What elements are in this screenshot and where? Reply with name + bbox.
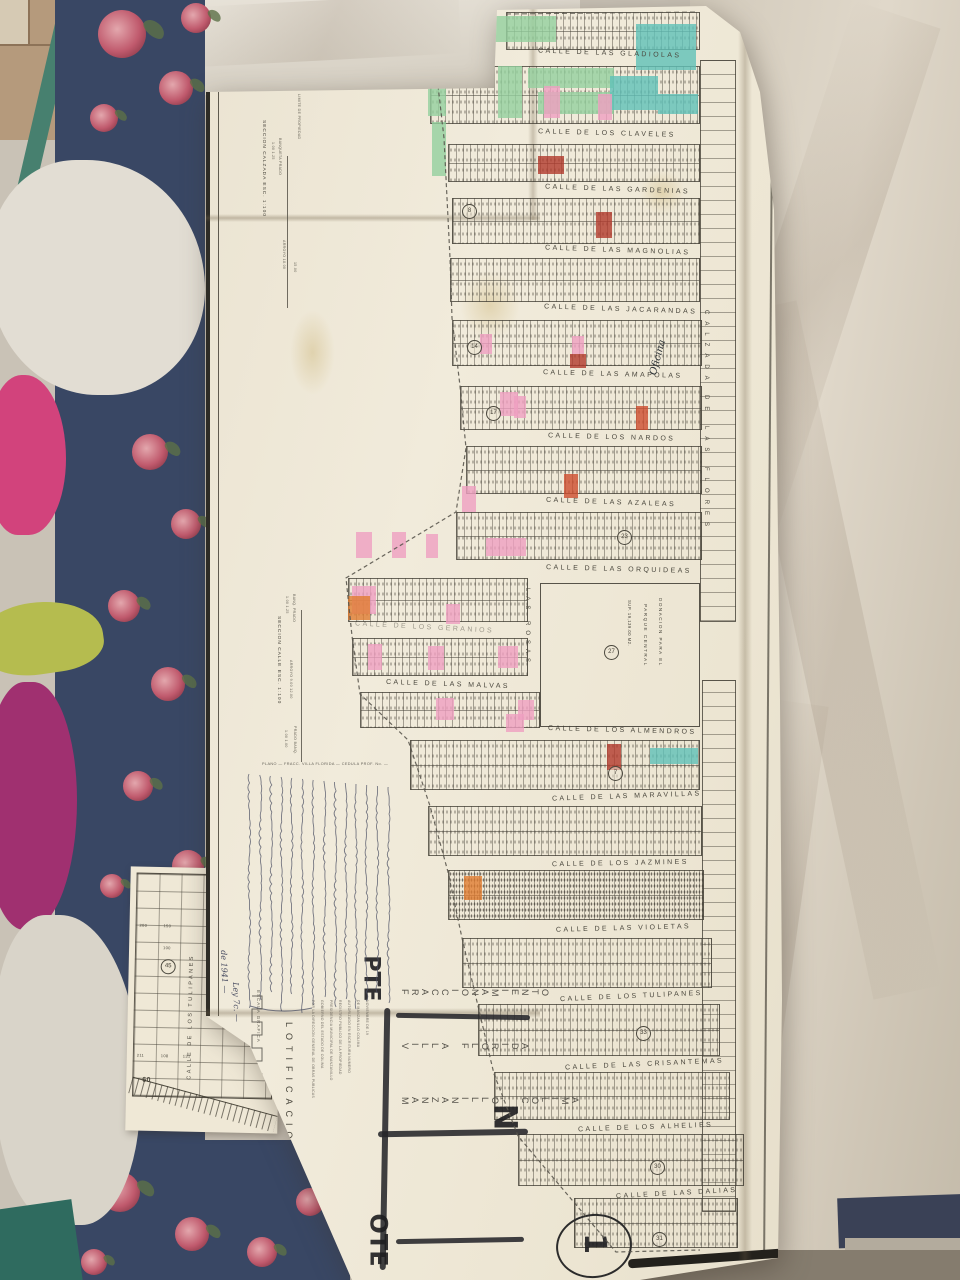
colored-lot (392, 532, 406, 558)
handwritten-ley-fragment: Ley 7c. — (231, 982, 241, 1022)
compass-north-label: N (486, 1104, 524, 1131)
certificate-small-print: DE MANZANILLO COLIMA (356, 1000, 360, 1047)
title-letter: I (500, 1043, 510, 1053)
escala-grafica-label: ESCALA GRAFICA (256, 990, 261, 1066)
photo-of-subdivision-map: { "scene": { "floor_color": "#b59a7c", "… (0, 0, 960, 1280)
colored-lot (464, 876, 482, 900)
paper-stain (290, 310, 335, 395)
svg-path (280, 777, 283, 1011)
block-number: 31 (652, 1232, 667, 1247)
colored-lot (636, 24, 696, 70)
colored-lot (570, 354, 586, 368)
title-letter: N (520, 989, 530, 999)
certificate-small-print: POR LA DIRECCION GENERAL DE OBRAS PUBLIC… (311, 1000, 315, 1098)
section-diagram-label: ARROYO 18.00 (282, 240, 286, 269)
title-letter: C (440, 989, 450, 999)
colored-lot (368, 644, 382, 670)
title-letter: L (470, 1097, 480, 1107)
title-letter: N (450, 1097, 460, 1107)
title-letter: I (500, 989, 510, 999)
colored-lot (492, 16, 556, 42)
printed-registry-line: PLANO — FRACC. VILLA FLORIDA — CEDULA PR… (262, 762, 388, 766)
colored-lot (446, 604, 460, 624)
street-label: CALLE DE LOS ALHELIES (578, 1122, 713, 1134)
title-letter: R (410, 989, 420, 999)
street-label: CALLE DE LOS GERANIOS (355, 620, 494, 634)
svg-path (334, 782, 337, 1007)
title-letter: N (420, 1097, 430, 1107)
street-label: CALLE DE LAS MARAVILLAS (552, 790, 702, 802)
title-letter: C (430, 989, 440, 999)
title-letter: A (440, 1097, 450, 1107)
colored-lot (426, 534, 438, 558)
block-number: 7 (608, 766, 623, 781)
street-label: CALLE DE LOS NARDOS (548, 432, 675, 442)
section-diagram-label: LIMITE DE PROPIEDAD (297, 94, 301, 139)
colored-lot (434, 16, 490, 42)
title-letter: L (420, 1043, 430, 1053)
title-letter: T (530, 989, 540, 999)
sheet-border-left (206, 92, 210, 1016)
fold-crease-vertical (738, 0, 752, 1260)
compass-ote-label: OTE (365, 1213, 393, 1266)
title-letter: I (460, 1097, 470, 1107)
vertical-map-label: LAS ROSAS (524, 588, 530, 667)
street-label: CALLE DE LOS JAZMINES (552, 859, 689, 868)
colored-lot (658, 94, 698, 114)
title-letter: V (400, 1043, 410, 1053)
certificate-small-print: NOVIEMBRE DE 19 (365, 1000, 369, 1035)
colored-lot (506, 714, 524, 732)
compass-ote-underline (396, 1237, 524, 1244)
section-diagram-label: ARROYO 9.00 12.00 (289, 660, 293, 699)
compass-pte-underline (396, 1013, 530, 1020)
map-sheet: CALLE DE LAS GLADIOLASCALLE DE LOS CLAVE… (0, 0, 960, 1280)
lot-block (702, 680, 736, 1212)
section-diagram-label: BANQUETA PRADO (278, 138, 282, 175)
svg-path (259, 775, 262, 1000)
title-letter: O (540, 989, 550, 999)
street-label: CALLE DE LAS AZALEAS (546, 497, 676, 509)
parque-central-block (540, 583, 700, 727)
section-diagram-label: 1.00 1.25 (285, 596, 289, 614)
street-label: CALLE DE LOS TULIPANES (560, 990, 703, 1003)
street-label: CALLE DE LAS AMAPOLAS (543, 369, 683, 380)
colored-lot (572, 336, 584, 354)
title-letter: I (550, 1097, 560, 1107)
colored-lot (636, 406, 648, 430)
colored-lot (480, 334, 492, 354)
lot-block (452, 198, 700, 244)
colored-lot (598, 94, 612, 120)
section-diagram-label: BANQ. PRADO (292, 594, 296, 622)
street-label: CALLE DE LAS MAGNOLIAS (545, 244, 691, 256)
title-letter: L (470, 1043, 480, 1053)
title-letter: A (570, 1097, 580, 1107)
colored-lot (486, 538, 526, 556)
street-label: CALLE DE LAS JACARANDAS (544, 303, 697, 315)
block-number: 23 (617, 530, 632, 545)
certificate-small-print: REGISTRO PUBLICO DE LA PROPIEDAD (338, 1000, 342, 1075)
handwritten-year-fragment: de 1941 — (219, 950, 230, 994)
lot-block (466, 446, 702, 494)
title-letter: E (510, 989, 520, 999)
svg-path (301, 779, 304, 1013)
map-paper: CALLE DE LAS GLADIOLASCALLE DE LOS CLAVE… (0, 0, 960, 1280)
block-number: 33 (636, 1026, 651, 1041)
street-label: CALLE DE LOS CLAVELES (538, 128, 676, 139)
title-letter: R (490, 1043, 500, 1053)
colored-lot (428, 646, 444, 670)
colored-lot (544, 86, 560, 118)
title-letter: M (400, 1097, 410, 1107)
street-label: CALLE DE LAS MALVAS (386, 679, 510, 690)
title-letter: A (480, 989, 490, 999)
lot-block (450, 258, 700, 302)
section-diagram-label: 1.00 1.25 (271, 142, 275, 160)
title-letter: Z (430, 1097, 440, 1107)
colored-lot (596, 212, 612, 238)
lot-block (448, 870, 704, 920)
street-label: CALLE DE LAS ORQUIDEAS (546, 564, 692, 575)
section-diagram-label: PRADO BANQ. (293, 726, 297, 754)
vertical-map-label: LOTIFICACION (284, 1022, 294, 1157)
title-letter: F (460, 1043, 470, 1053)
colored-lot (356, 532, 372, 558)
svg-path (387, 787, 390, 1003)
svg-path (312, 780, 315, 1005)
compass-pte-label: PTE (359, 955, 384, 1001)
certificate-small-print: AUTORIZADO EN ESCRITURA NUMERO (347, 1000, 351, 1073)
section-diagram-label: 15.00 (293, 262, 297, 273)
title-letter: M (560, 1097, 570, 1107)
vertical-map-label: CALZADA DE LAS FLORES (703, 310, 709, 533)
svg-path (290, 778, 293, 994)
title-row: VILLA FLORIDA (400, 1038, 530, 1056)
lot-block (448, 144, 700, 182)
colored-lot (538, 156, 564, 174)
title-letter: L (430, 1043, 440, 1053)
title-letter: I (450, 989, 460, 999)
block-number: 14 (467, 340, 482, 355)
title-letter: D (510, 1043, 520, 1053)
title-letter: N (470, 989, 480, 999)
svg-path (355, 784, 358, 1009)
title-letter: A (520, 1043, 530, 1053)
colored-lot (436, 698, 454, 720)
colored-lot (498, 66, 522, 118)
title-letter: A (420, 989, 430, 999)
title-letter: L (540, 1097, 550, 1107)
sheet-number: 1 (577, 1233, 612, 1254)
lot-block (462, 938, 712, 988)
sheet-border-right (763, 150, 773, 1250)
section-diagram-title: SECCION CALLE ESC. 1:100 (276, 616, 281, 704)
svg-path (323, 781, 326, 997)
colored-lot (498, 646, 518, 668)
sheet-border-left-inner (218, 92, 219, 1016)
title-letter: M (490, 989, 500, 999)
svg-path (248, 774, 251, 1008)
section-diagram-label: 1.00 1.00 (284, 730, 288, 748)
title-letter: F (400, 989, 410, 999)
colored-lot (514, 396, 526, 418)
colored-lot (428, 60, 446, 116)
section-diagram-line (301, 610, 302, 762)
title-letter: O (530, 1097, 540, 1107)
svg-path (270, 776, 273, 992)
colored-lot (348, 596, 370, 620)
street-label: CALLE DE LAS CRISANTEMAS (565, 1058, 724, 1072)
title-letter: O (480, 1043, 490, 1053)
title-row: FRACCIONAMIENTO (400, 984, 550, 1002)
colored-lot (462, 486, 476, 512)
colored-lot (528, 68, 614, 88)
section-diagram-line (287, 156, 288, 308)
block-number: 17 (486, 406, 501, 421)
lot-block (428, 806, 702, 856)
parque-block-number: 27 (604, 645, 619, 660)
colored-lot (610, 76, 658, 110)
title-letter: O (460, 989, 470, 999)
certificate-small-print: PRESIDENCIA MUNICIPAL DE MANZANILLO (329, 1000, 333, 1081)
block-number: 8 (462, 204, 477, 219)
block-number: 30 (650, 1160, 665, 1175)
section-diagram-title: SECCION CALZADA ESC. 1:100 (261, 120, 266, 217)
title-letter: I (410, 1043, 420, 1053)
title-letter: A (410, 1097, 420, 1107)
street-label: CALLE DE LAS VIOLETAS (556, 923, 691, 934)
colored-lot (432, 122, 446, 176)
svg-path (344, 783, 347, 999)
certificate-small-print: GOBIERNO DEL ESTADO DE COLIMA (320, 1000, 324, 1069)
colored-lot (564, 474, 578, 498)
sheet-border-bottom (628, 1249, 782, 1269)
colored-lot (650, 748, 698, 764)
